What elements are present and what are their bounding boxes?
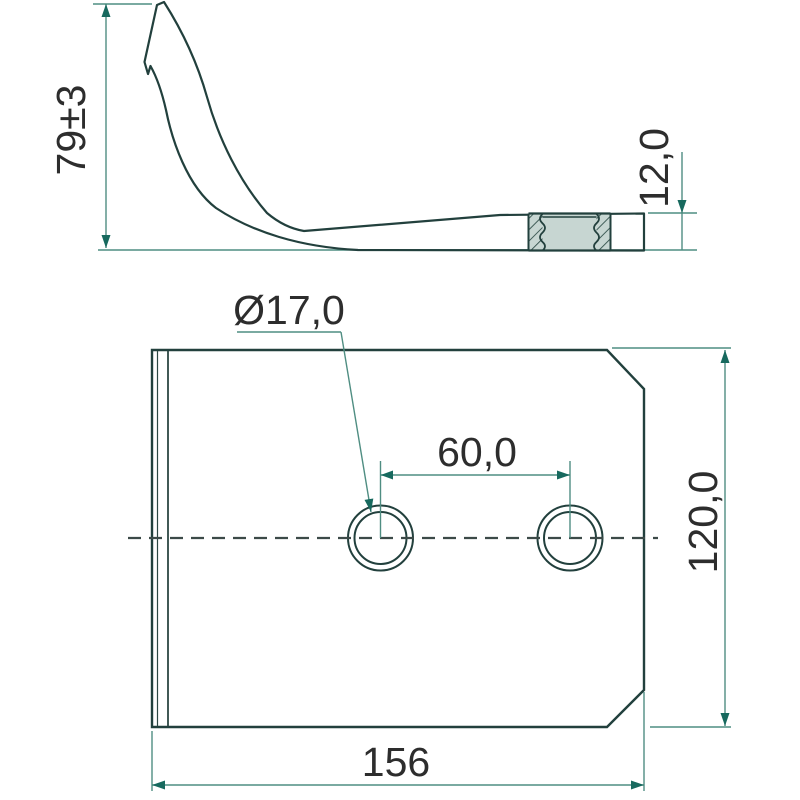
arrow-right-icon: [557, 471, 570, 480]
plan-view: [128, 350, 658, 727]
arrow-down-icon: [102, 235, 111, 248]
dim-plate-width-label: 156: [362, 739, 430, 785]
dim-height-label: 79±3: [48, 85, 94, 176]
dim-plate-height: 120,0: [612, 348, 731, 727]
dim-plate-height-label: 120,0: [680, 471, 726, 574]
drawing-page: 79±3 12,0 Ø17,0 60,0: [0, 0, 800, 800]
dim-hole-diameter: Ø17,0: [233, 287, 373, 512]
arrow-up-icon: [102, 4, 111, 17]
dim-hole-diameter-label: Ø17,0: [233, 287, 345, 333]
arrow-up-icon: [721, 350, 730, 363]
weld-nut-section: [529, 214, 611, 251]
dim-overall-height: 79±3: [48, 4, 152, 248]
dim-thickness-label: 12,0: [631, 128, 677, 208]
technical-drawing: 79±3 12,0 Ø17,0 60,0: [0, 0, 800, 800]
arrow-right-icon: [631, 781, 644, 790]
arrow-down-icon: [678, 200, 687, 213]
arrow-down-icon: [721, 713, 730, 726]
dim-plate-width: 156: [152, 692, 644, 791]
dim-thickness: 12,0: [631, 128, 697, 250]
arrow-left-icon: [381, 471, 394, 480]
dim-hole-spacing-label: 60,0: [437, 429, 517, 475]
side-view: [98, 2, 697, 251]
arrow-left-icon: [152, 781, 165, 790]
dimensions: 79±3 12,0 Ø17,0 60,0: [48, 4, 731, 791]
